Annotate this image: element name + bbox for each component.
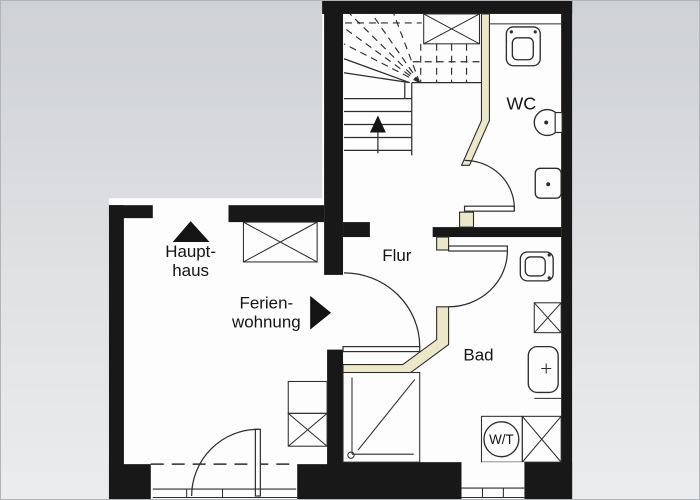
toilet-bowl — [512, 38, 533, 60]
toilet-bowl — [525, 257, 545, 276]
apartment-room-floor — [109, 198, 345, 499]
wall-bottom-middle — [343, 462, 462, 499]
basin-tap — [555, 113, 562, 133]
wc-door-panel — [465, 206, 515, 211]
room-label-flur: Flur — [382, 246, 412, 265]
room-label-wc: WC — [506, 94, 536, 114]
ferienwohnung-label-line2: wohnung — [231, 313, 301, 332]
bad-toilet-icon — [520, 252, 553, 281]
wall-room-bottom-left — [109, 464, 151, 499]
toilet-bolt — [510, 30, 513, 33]
toilet-bolt — [548, 276, 551, 279]
wall-stub-flur — [343, 222, 370, 237]
ferienwohnung-door-panel — [343, 347, 420, 352]
basin-outline — [528, 347, 558, 393]
wc-toilet-icon — [506, 27, 540, 66]
partition-wc-jamb — [460, 212, 474, 227]
ferienwohnung-label-line1: Ferien- — [240, 294, 294, 313]
room-label-bad: Bad — [463, 346, 493, 365]
wall-right — [561, 1, 572, 499]
floor-plan-image: W/T Haupt- haus Ferien- wohnung Flur W — [0, 0, 700, 500]
haupthaus-label-line2: haus — [172, 261, 209, 280]
partition-bad-stub — [437, 237, 449, 250]
basin-drain — [544, 121, 548, 125]
wc-round-washbasin-icon — [534, 110, 562, 136]
floor-plan-svg: W/T Haupt- haus Ferien- wohnung Flur W — [1, 1, 699, 499]
wall-room-left — [109, 205, 124, 499]
toilet-bolt — [534, 30, 537, 33]
window-opening-bottom — [462, 462, 525, 499]
toilet-bolt — [548, 253, 551, 256]
wc-washbasin-icon — [535, 168, 561, 198]
wall-flur-bad — [433, 227, 561, 237]
wall-top — [322, 1, 572, 14]
wall-room-top-right — [228, 205, 324, 222]
washer-dryer-label: W/T — [489, 432, 514, 447]
basin-drain — [546, 182, 550, 186]
bad-door-panel — [449, 246, 508, 251]
entrance-door-panel — [255, 429, 260, 496]
wall-room-bottom-right — [297, 464, 345, 499]
wall-stair-left — [324, 1, 343, 275]
haupthaus-label-line1: Haupt- — [165, 242, 216, 261]
wall-bottom-right — [524, 462, 572, 499]
wall-room-top-left — [109, 205, 153, 218]
window-gap — [462, 462, 525, 499]
